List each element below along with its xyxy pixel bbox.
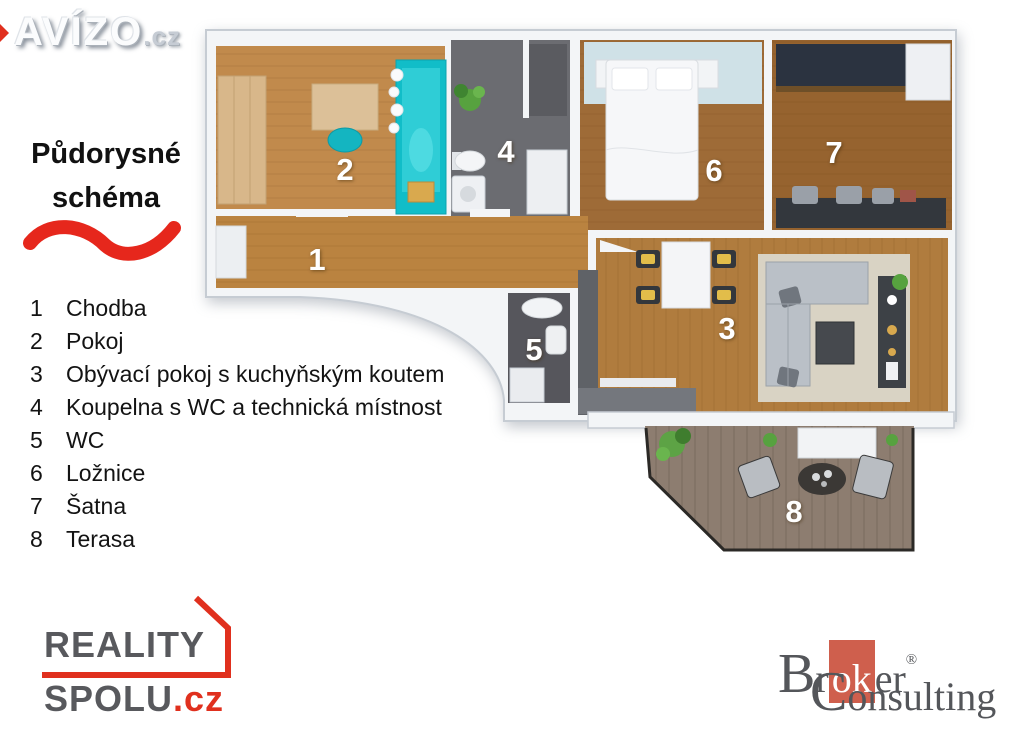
legend-item: 5WC [30,424,444,457]
wc-toilet [546,326,566,354]
room-loznice: 6 [580,40,764,230]
legend-num: 4 [30,391,66,424]
room-legend: 1Chodba 2Pokoj 3Obývací pokoj s kuchyňsk… [30,292,444,556]
double-bed [606,60,698,200]
avizo-red-mark [0,24,9,42]
teal-chair [328,128,362,152]
pillow [656,68,692,90]
outdoor-table [798,463,846,495]
room-label-3: 3 [718,311,735,346]
reality-spolu-logo: REALITY SPOLU.cz [38,592,248,737]
potted-plant [763,433,777,447]
legend-label: Ložnice [66,457,145,490]
room-koupelna: 4 [451,40,570,218]
outdoor-sofa [798,428,876,458]
room-pokoj: 2 [216,46,446,214]
desk-accessory [900,190,916,202]
legend-item: 6Ložnice [30,457,444,490]
page-title: Půdorysné schéma [8,132,204,220]
legend-item: 4Koupelna s WC a technická místnost [30,391,444,424]
tech-room-wall [523,40,529,118]
legend-label: Koupelna s WC a technická místnost [66,391,442,424]
sink [522,298,562,318]
stool [408,182,434,202]
broker-line2: Consulting [810,672,996,717]
washing-machine [452,176,485,212]
avizo-tld: .cz [143,21,181,51]
room-label-4: 4 [497,134,515,169]
room-label-8: 8 [785,494,802,529]
legend-num: 2 [30,325,66,358]
room-obyvaci-pokoj: 3 [578,238,948,415]
title-line1: Půdorysné [8,132,204,176]
potted-plant [886,434,898,446]
dining-table [662,242,710,308]
room-label-5: 5 [525,332,542,367]
pillow [612,68,648,90]
legend-num: 6 [30,457,66,490]
wc-cabinet [510,368,544,402]
registered-icon: ® [906,652,917,668]
avizo-brand: AVÍZO [14,10,143,54]
legend-num: 5 [30,424,66,457]
legend-label: Šatna [66,490,126,523]
legend-label: Chodba [66,292,147,325]
tech-room [529,44,567,116]
shower-tray [527,150,567,214]
room-label-6: 6 [705,153,722,188]
entrance-door [216,226,246,278]
room-1-floor-planks [216,216,588,288]
legend-num: 1 [30,292,66,325]
toilet [452,151,485,171]
legend-label: Obývací pokoj s kuchyňským koutem [66,358,444,391]
broker-cap-c: C [810,661,847,723]
wardrobe-unit [776,44,906,86]
reality-line1: REALITY [44,624,205,666]
reality-spolu-word: SPOLU [44,678,173,719]
broker-seg3: onsulting [847,674,996,719]
reality-tld: .cz [173,678,224,719]
legend-label: Terasa [66,523,135,556]
reality-line2: SPOLU.cz [44,678,224,720]
room-label-1: 1 [308,242,325,277]
canopy-bed [389,60,446,214]
room-label-7: 7 [825,135,842,170]
legend-label: Pokoj [66,325,124,358]
door-gap-bath [470,209,510,217]
room-wc: 5 [508,293,570,403]
wardrobe [218,76,266,204]
desk-chairs [792,186,894,204]
terrace-sill [588,412,954,428]
legend-item: 3Obývací pokoj s kuchyňským koutem [30,358,444,391]
closet-white [906,44,950,100]
room-satna: 7 [772,40,952,230]
coffee-table [816,322,854,364]
desk-table [312,84,378,130]
room-chodba: 1 [216,209,588,288]
legend-label: WC [66,424,104,457]
room-label-2: 2 [336,152,353,187]
door-gap-room2 [296,209,348,217]
legend-item: 2Pokoj [30,325,444,358]
shelf-plant [892,274,908,290]
room-terasa: 8 [588,412,954,551]
avizo-watermark: AVÍZO.cz [14,10,181,55]
legend-num: 3 [30,358,66,391]
red-swoosh [8,212,203,264]
legend-item: 1Chodba [30,292,444,325]
legend-item: 8Terasa [30,523,444,556]
legend-num: 7 [30,490,66,523]
wardrobe-shelf [776,86,906,92]
tv-unit [878,274,908,388]
canopy-bed-sheen [409,128,433,172]
legend-item: 7Šatna [30,490,444,523]
legend-num: 8 [30,523,66,556]
